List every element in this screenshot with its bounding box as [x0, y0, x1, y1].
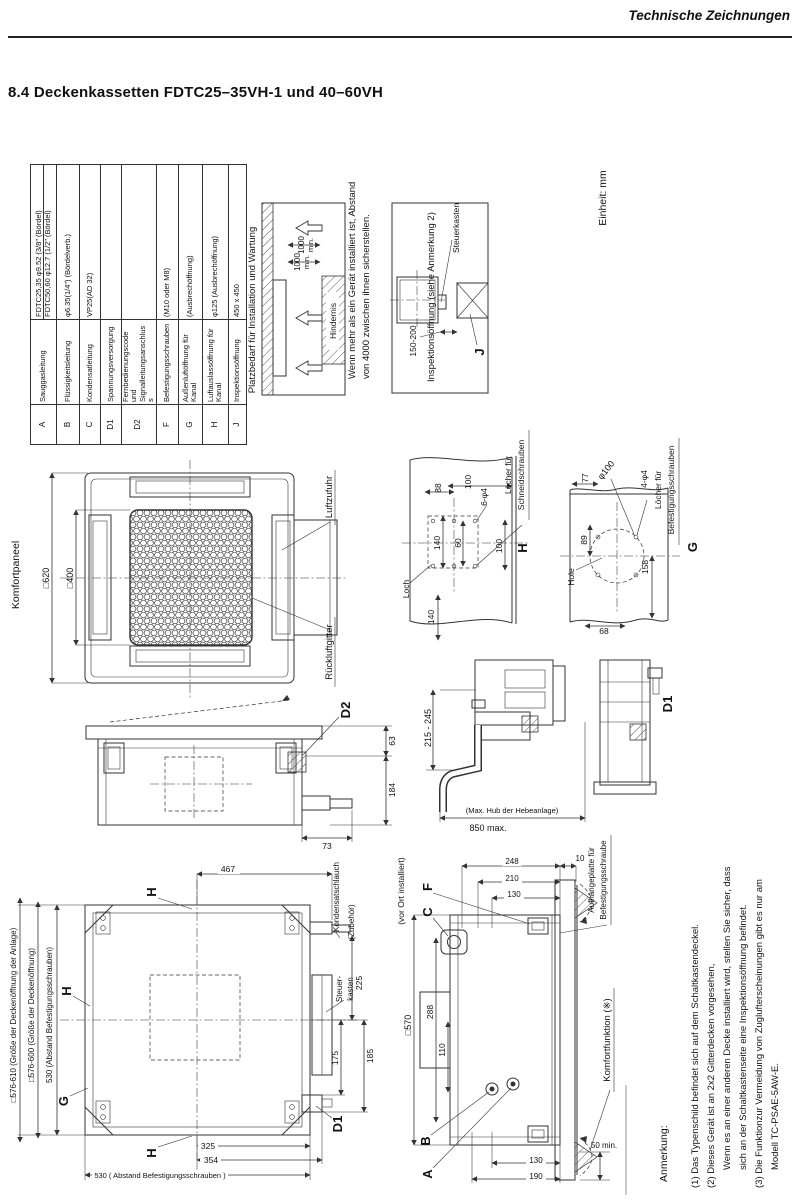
- dim: 185: [365, 1049, 375, 1063]
- hole-purpose: Löcher für: [503, 456, 513, 494]
- h-top-label: H: [144, 887, 159, 896]
- notes-heading: Anmerkung:: [658, 1125, 670, 1182]
- unit-cross-section: □570 288 110 248 10 210 130 130 190 50 m…: [396, 835, 626, 1195]
- gap-dim: 150-200: [408, 325, 418, 356]
- inspection-note: Inspektionsöffnung (siehe Anmerkung 2): [426, 212, 437, 382]
- hole-diameter: φ100: [596, 459, 617, 482]
- dim: 88: [433, 483, 443, 493]
- hole-purpose: Befestigungsschrauben: [666, 445, 676, 534]
- j-label: J: [472, 348, 487, 355]
- pipe-letter-a: A: [420, 1169, 435, 1179]
- knockout-g-drawing: 77 φ100 4-φ4 Löcher für Befestigungsschr…: [560, 438, 700, 636]
- pipe-letter-c: C: [420, 907, 435, 917]
- hanger-plate-label: Aufhängeplatte für: [587, 847, 596, 913]
- install-clearance-diagram: Platzbedarf für Installation und Wartung…: [247, 182, 488, 395]
- panel-inner-dim: □400: [65, 568, 75, 588]
- note-line: (1) Das Typenschild befindet sich auf de…: [690, 924, 701, 1188]
- dim: 10: [576, 854, 585, 863]
- dim: 190: [529, 1172, 543, 1181]
- hole-qty: 4-φ4: [639, 470, 649, 488]
- install-title: Platzbedarf für Installation und Wartung: [247, 227, 258, 394]
- dim: 89: [579, 535, 589, 545]
- detail-letter-d2: D2: [338, 702, 353, 719]
- g-left-label: G: [56, 1096, 71, 1106]
- ceiling-opening-unit-dim: □576-610 (Größe der Deckenöffnung der An…: [9, 927, 18, 1102]
- dim: 63: [387, 736, 397, 746]
- knockout-h-drawing: 100 88 140 60 100 140 6-φ4 Löcher für Sc…: [401, 430, 530, 640]
- detail-letter-d1: D1: [660, 696, 675, 713]
- note-line: (3) Die Funktionzur Vermeidung von Zuglu…: [754, 879, 765, 1188]
- note-line: sich an der Schaltkastenseite eine Inspe…: [738, 905, 749, 1170]
- dim: 158: [640, 560, 650, 574]
- pipe-letter-f: F: [420, 883, 435, 891]
- comfort-function-label: Komfortfunktion (※): [602, 998, 613, 1081]
- dim: 210: [505, 874, 519, 883]
- clearance-dim-min: min.: [306, 238, 315, 252]
- max-lift-note: (Max. Hub der Hebeanlage): [466, 806, 559, 815]
- dim: 110: [437, 1043, 447, 1057]
- hole-qty: 6-φ4: [479, 488, 489, 506]
- dim: 354: [204, 1155, 218, 1165]
- loch-label: Loch: [401, 580, 411, 599]
- dim: 325: [201, 1141, 215, 1151]
- dim: 50 min.: [591, 1141, 617, 1150]
- supply-air-label: Luftzufuhr: [324, 476, 335, 518]
- control-box-label: Steuerkasten: [451, 203, 461, 253]
- panel-name-label: Komfortpaneel: [10, 541, 22, 609]
- panel-outer-dim: □620: [41, 568, 51, 588]
- notes-block: Anmerkung: (1) Das Typenschild befindet …: [658, 866, 781, 1188]
- drawing-sheet: Einheit: mm Platzbedarf für Installation…: [0, 0, 800, 1200]
- pipe-letter-b: B: [418, 1136, 433, 1145]
- dim: 225: [354, 976, 364, 990]
- bolt-pitch-left: 530 (Abstand Befestigungsschrauben): [45, 947, 54, 1083]
- dim: 140: [426, 610, 436, 624]
- h-bottom-label: H: [144, 1148, 159, 1157]
- dim: 130: [507, 890, 521, 899]
- dim: 77: [580, 473, 590, 483]
- bolt-pitch-bottom: 530 ( Abstand Befestigungsschrauben ): [94, 1171, 226, 1180]
- clearance-dim: 1000: [297, 236, 306, 254]
- ceiling-opening-dim: □576-600 (Größe der Deckenöffnung): [27, 948, 36, 1082]
- note-line: Modell TC-PSAE-5AW-E.: [770, 1063, 781, 1170]
- hole-label: Hole: [566, 568, 576, 586]
- lift-range-dim: 215 - 245: [423, 709, 433, 747]
- dim: 140: [432, 536, 442, 550]
- dim: 184: [387, 783, 397, 797]
- multi-unit-note: von 4000 zwischen ihnen sicherstellen.: [361, 214, 372, 379]
- comfort-panel-drawing: □620 □400 Komfortpaneel Luftzufuhr Rückl…: [10, 460, 348, 700]
- hole-purpose: Schneidschrauben: [516, 440, 526, 511]
- obstacle-label: Hindernis: [328, 303, 338, 339]
- hanger-plate-label2: Befestigungsschraube: [599, 840, 608, 920]
- dim: 175: [330, 1051, 340, 1065]
- detail-letter-g: G: [685, 542, 700, 552]
- field-install-note: (vor Ort installiert): [396, 857, 406, 925]
- detail-letter-h: H: [515, 543, 530, 552]
- drain-lift-drawing: 215 - 245 (Max. Hub der Hebeanlage) 850 …: [423, 660, 585, 833]
- drain-hose-label2: (Zubehör): [347, 904, 356, 939]
- clearance-dim: 1000: [293, 253, 302, 271]
- d1-detail-drawing: D1: [594, 660, 675, 794]
- unit-note: Einheit: mm: [597, 170, 609, 226]
- dim: 73: [322, 841, 332, 851]
- max-lift-dim: 850 max.: [469, 823, 506, 833]
- hole-purpose: Löcher für: [653, 471, 663, 509]
- note-line: Wenn es an einer anderen Decke installie…: [722, 866, 733, 1170]
- dim: 248: [505, 857, 519, 866]
- clearance-dim-min: min.: [302, 255, 311, 269]
- control-box-label: Steuer-: [335, 976, 344, 1003]
- drain-hose-label: Kondensatschlauch: [332, 862, 341, 932]
- dim: 467: [221, 864, 235, 874]
- dim: 68: [599, 626, 609, 636]
- dim: □570: [403, 1015, 413, 1035]
- dim: 130: [529, 1156, 543, 1165]
- unit-body-top-view: H H G H D1 530 (Abstand Befestigungsschr…: [9, 862, 375, 1180]
- h-left-label: H: [59, 986, 74, 995]
- dim: 100: [463, 475, 473, 489]
- unit-side-view: D2 63 184 73: [86, 695, 397, 851]
- dim: 100: [494, 539, 504, 553]
- d1-label: D1: [330, 1116, 345, 1133]
- dim: 288: [425, 1005, 435, 1019]
- multi-unit-note: Wenn mehr als ein Gerät installiert ist,…: [347, 182, 358, 379]
- return-grille-label: Rückluftgitter: [324, 624, 335, 679]
- dim: 60: [453, 538, 463, 548]
- note-line: (2) Dieses Gerät ist an 2x2 Gitterdecken…: [706, 964, 717, 1188]
